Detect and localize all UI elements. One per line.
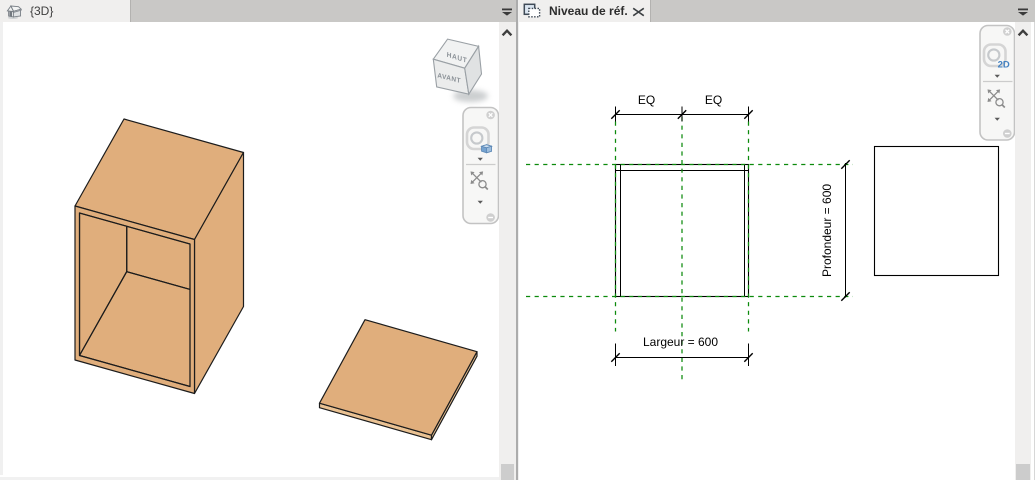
svg-text:Profondeur = 600: Profondeur = 600 xyxy=(820,184,834,277)
svg-text:EQ: EQ xyxy=(705,93,722,107)
svg-text:Largeur = 600: Largeur = 600 xyxy=(643,335,718,349)
svg-text:2D: 2D xyxy=(997,60,1009,71)
svg-text:EQ: EQ xyxy=(638,93,655,107)
